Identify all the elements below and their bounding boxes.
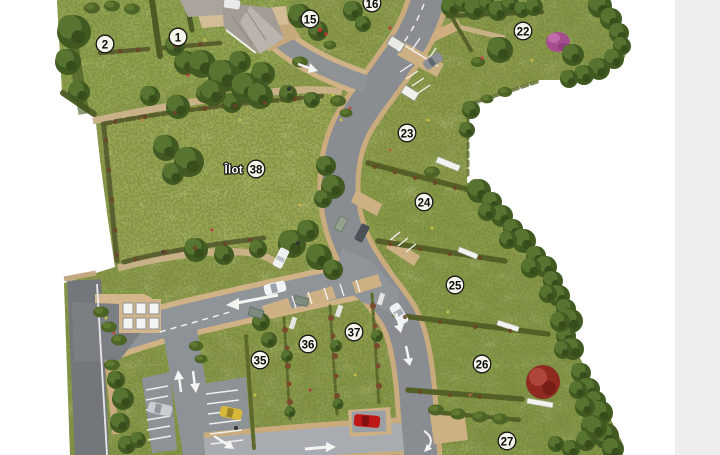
svg-text:26: 26 [476,360,489,372]
svg-text:24: 24 [418,198,431,210]
svg-text:16: 16 [366,0,379,11]
svg-text:35: 35 [254,356,267,368]
svg-text:15: 15 [304,15,317,27]
svg-text:23: 23 [401,129,414,141]
svg-text:38: 38 [250,165,263,177]
svg-text:22: 22 [517,27,530,39]
svg-text:2: 2 [102,40,108,52]
svg-text:1: 1 [175,33,182,45]
svg-text:27: 27 [501,437,514,449]
svg-text:36: 36 [302,340,315,352]
svg-text:Îlot: Îlot [224,164,243,177]
svg-text:25: 25 [449,281,462,293]
svg-text:37: 37 [348,328,361,340]
